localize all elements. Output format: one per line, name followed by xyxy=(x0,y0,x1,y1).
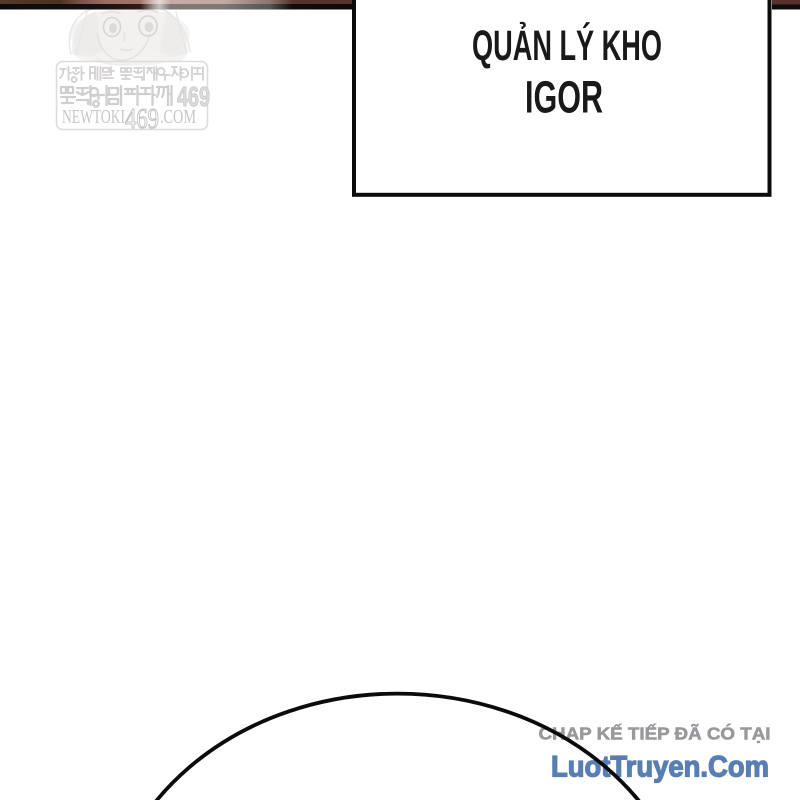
svg-text:NEWTOKI: NEWTOKI xyxy=(62,106,125,128)
svg-text:QUẢN LÝ KHO: QUẢN LÝ KHO xyxy=(472,21,662,70)
svg-text:LuotTruyen.Com: LuotTruyen.Com xyxy=(551,750,769,783)
svg-text:IGOR: IGOR xyxy=(525,71,603,122)
svg-text:469: 469 xyxy=(125,104,159,135)
svg-text:.COM: .COM xyxy=(160,106,196,128)
svg-text:CHAP KẾ TIẾP ĐÃ CÓ TẠI: CHAP KẾ TIẾP ĐÃ CÓ TẠI xyxy=(539,722,771,743)
